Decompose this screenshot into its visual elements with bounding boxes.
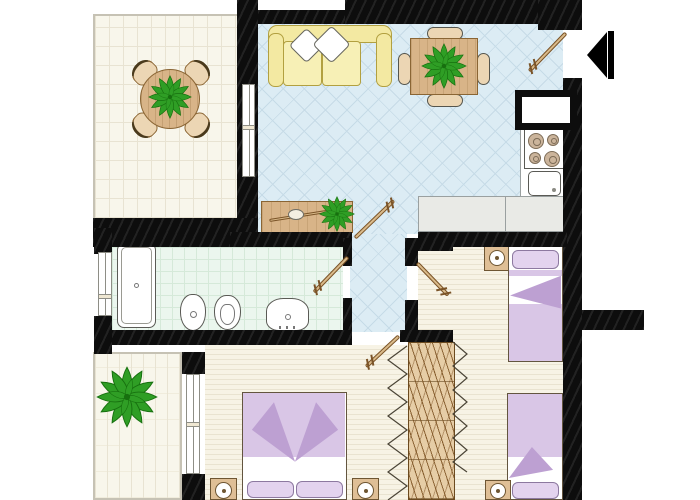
sofa-armrest (376, 33, 392, 87)
wall (182, 352, 205, 374)
wardrobe (408, 342, 455, 500)
stove-burner (529, 152, 541, 164)
entry-niche (515, 90, 577, 130)
double-bed (242, 392, 347, 500)
decor-object-base (288, 209, 304, 220)
entrance-arrow-bar (608, 31, 614, 79)
wardrobe-folding-door-icon (453, 340, 469, 472)
stove-burner (528, 133, 544, 149)
bed-pillow (247, 481, 294, 498)
window (186, 374, 200, 474)
window-crossbar (99, 294, 111, 299)
wall (182, 474, 205, 500)
window-crossbar (187, 422, 199, 427)
wall (563, 78, 582, 500)
wall (230, 232, 352, 247)
window (98, 252, 112, 316)
window-frame (249, 85, 250, 176)
wall (343, 298, 352, 332)
potted-plant-icon (319, 196, 355, 232)
bed-pillow (512, 482, 559, 499)
bidet-tap (190, 311, 197, 318)
dining-chair (477, 53, 490, 85)
wall (94, 330, 352, 345)
wall-stub (582, 310, 644, 330)
window-frame (105, 253, 106, 315)
lamp (489, 250, 505, 266)
lamp (357, 482, 374, 499)
wall (258, 10, 345, 24)
dining-chair (427, 94, 463, 107)
bed-pillow (512, 250, 559, 269)
sofa-armrest (268, 33, 284, 87)
washbasin-drain (285, 314, 291, 320)
potted-plant-icon (148, 75, 192, 119)
room-hallway (350, 234, 407, 332)
wall (405, 238, 418, 266)
sink-drain (552, 188, 556, 192)
bed-blanket (509, 304, 562, 361)
potted-plant-icon (96, 366, 158, 428)
lamp (215, 482, 232, 499)
window-crossbar (243, 125, 254, 130)
toilet-bowl (220, 304, 235, 325)
stove-burner (544, 151, 560, 167)
potted-plant-icon (421, 43, 467, 89)
wall (94, 316, 112, 354)
washbasin-taps (279, 326, 297, 329)
kitchen-counter (418, 196, 567, 232)
bathtub-drain (134, 283, 139, 288)
stove-burner (547, 134, 559, 146)
floor-plan (0, 0, 700, 500)
bed-blanket (508, 394, 562, 457)
wall (405, 300, 418, 332)
wall-stub (400, 330, 453, 342)
lamp (490, 483, 506, 499)
window (242, 84, 255, 177)
kitchen-sink (528, 171, 561, 196)
wall (94, 228, 112, 254)
single-bed-top (508, 245, 563, 362)
entrance-arrow-icon (587, 32, 607, 78)
wardrobe-folding-door-icon (385, 344, 407, 500)
counter-divider (505, 197, 506, 231)
wall (538, 0, 582, 30)
single-bed-bottom (507, 393, 563, 500)
bed-blanket-strip (509, 270, 562, 276)
bed-pillow (296, 481, 343, 498)
